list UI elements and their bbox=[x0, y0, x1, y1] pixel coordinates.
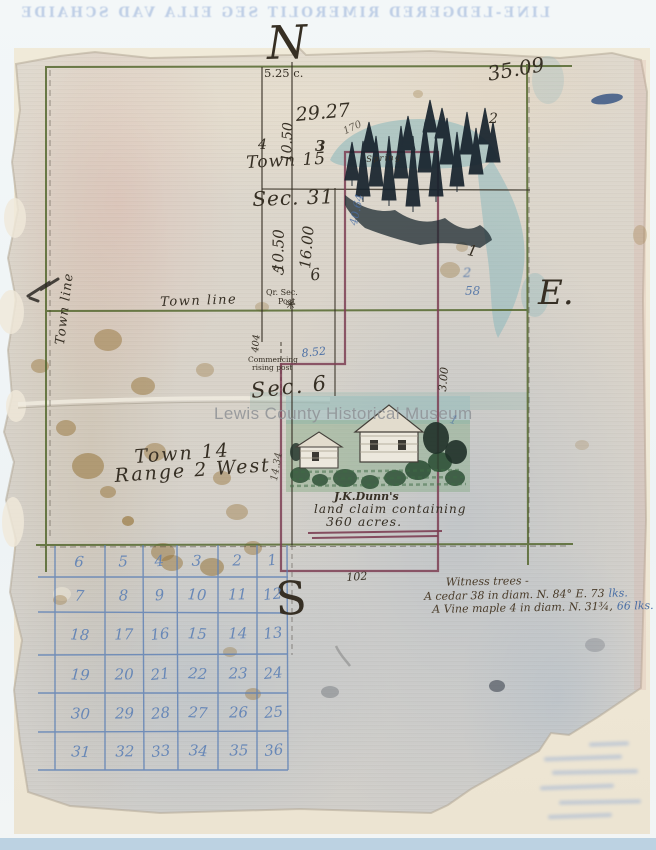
annotation-2-blue: 2 bbox=[463, 267, 471, 280]
town-line-left-label: Town line bbox=[54, 272, 76, 346]
measurement-102: 102 bbox=[346, 571, 368, 583]
measurement-170: 170 bbox=[342, 120, 364, 137]
section-number: 5 bbox=[104, 544, 142, 577]
witness-entries: A cedar 38 in diam. N. 84° E. 73lks.A Vi… bbox=[424, 585, 654, 616]
witness-tree-description: A Vine maple 4 in diam. N. 31¾, bbox=[432, 600, 613, 616]
sec-31-label: Sec. 31 bbox=[252, 186, 335, 209]
measurement-29-27: 29.27 bbox=[295, 101, 351, 125]
section-number: 34 bbox=[177, 731, 220, 771]
section-number: 20 bbox=[105, 655, 143, 693]
section-number: 36 bbox=[257, 730, 291, 771]
annotation-1-blue: 1 bbox=[448, 413, 459, 427]
quarter-section-post-icon: ✳ bbox=[285, 299, 296, 312]
section-number: 1 bbox=[256, 542, 289, 578]
witness-notes: Witness trees - A cedar 38 in diam. N. 8… bbox=[424, 572, 654, 616]
section-grid: 6543217891011121817161514131920212223243… bbox=[54, 543, 289, 771]
measurement-14-34: 14.34 bbox=[270, 452, 285, 482]
measurement-8-52: 8.52 bbox=[301, 345, 327, 359]
measurement-5-25: 5.25 c. bbox=[264, 68, 303, 80]
measurement-16-00: 16.00 bbox=[298, 225, 317, 269]
measurement-404: 404 bbox=[251, 334, 262, 353]
section-number: 19 bbox=[54, 654, 106, 695]
section-number: 29 bbox=[105, 693, 143, 732]
measurement-3-00: 3.00 bbox=[437, 367, 450, 392]
section-number-4: 4 bbox=[258, 138, 267, 152]
scan-bottom-band bbox=[0, 838, 656, 850]
section-number: 27 bbox=[176, 692, 219, 733]
section-number: 6 bbox=[53, 543, 105, 579]
town-line-label: Town line bbox=[160, 293, 237, 309]
section-number: 31 bbox=[55, 731, 107, 772]
section-number: 7 bbox=[53, 576, 105, 614]
annotation-58: 58 bbox=[465, 285, 480, 297]
compass-east-label: E. bbox=[538, 276, 574, 310]
section-number: 8 bbox=[104, 577, 142, 612]
section-number: 21 bbox=[141, 654, 178, 695]
claim-owner-label: J.K.Dunn's bbox=[334, 491, 399, 502]
section-number: 15 bbox=[176, 611, 220, 656]
section-number: 9 bbox=[141, 576, 178, 614]
compass-north-label: N bbox=[266, 19, 308, 66]
spring-label: Spring bbox=[366, 154, 401, 165]
section-number: 16 bbox=[141, 611, 179, 657]
section-number: 2 bbox=[217, 543, 257, 576]
sec-6-label: Sec. 6 bbox=[250, 373, 329, 402]
commencing-note-line2: rising post bbox=[252, 364, 292, 372]
section-number: 18 bbox=[54, 611, 107, 657]
section-number-6: 6 bbox=[309, 266, 322, 284]
section-number: 17 bbox=[105, 612, 143, 655]
section-number: 24 bbox=[256, 653, 290, 694]
section-number: 22 bbox=[176, 654, 219, 694]
section-number: 33 bbox=[142, 731, 179, 772]
section-number: 35 bbox=[219, 731, 259, 769]
quarter-section-label-line1: Qr. Sec. bbox=[266, 289, 298, 297]
section-number: 26 bbox=[218, 692, 258, 731]
section-number: 4 bbox=[141, 543, 178, 579]
section-number: 11 bbox=[217, 576, 257, 611]
section-number: 10 bbox=[175, 576, 218, 613]
section-number: 32 bbox=[106, 732, 144, 770]
witness-tree-distance: lks. bbox=[608, 586, 628, 599]
section-number: 13 bbox=[256, 610, 290, 656]
witness-tree-distance: 66 lks. bbox=[617, 599, 654, 613]
section-number: 30 bbox=[54, 692, 106, 734]
section-number: 23 bbox=[218, 654, 258, 692]
section-number: 28 bbox=[142, 692, 180, 734]
measurement-35-09: 35.09 bbox=[486, 54, 546, 84]
section-number: 12 bbox=[256, 575, 289, 613]
section-number: 25 bbox=[257, 691, 291, 733]
scanned-map: Lewis County Historical Museum LINE-LEDG… bbox=[0, 0, 656, 850]
section-number: 3 bbox=[175, 543, 218, 578]
annotation-1: 1 bbox=[466, 243, 478, 260]
town-15-label: Town 15 bbox=[246, 151, 327, 172]
section-number-2: 2 bbox=[489, 112, 498, 126]
claim-acreage-label: 360 acres. bbox=[326, 516, 402, 529]
measurement-40-64: 40.64 bbox=[348, 193, 365, 226]
section-number: 14 bbox=[218, 611, 258, 654]
